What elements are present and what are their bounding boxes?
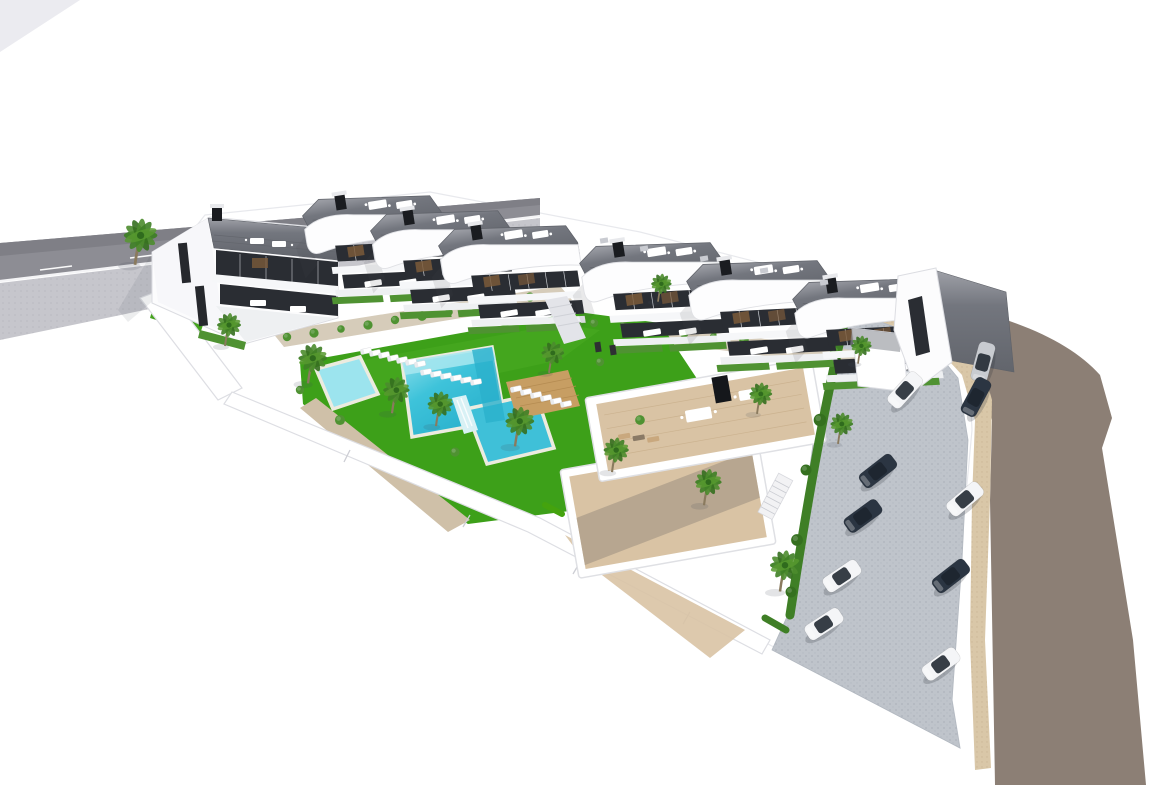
bush [814,414,827,427]
palm-shadow [746,412,761,418]
palm-shadow [691,503,709,510]
palm-shadow [213,344,229,350]
bush [391,316,399,324]
bush [791,534,803,546]
palm-shadow [848,362,862,367]
chimney-cap [210,204,224,208]
bush [363,320,372,329]
architectural-rendering [0,0,1170,785]
bush [450,447,459,456]
bush [590,319,598,327]
terrace-furniture [290,306,306,312]
bush [786,587,797,598]
bush [596,358,604,366]
bush [337,325,345,333]
bush [801,465,812,476]
palm-shadow [827,442,842,448]
chimney-icon [212,206,222,221]
bush [335,415,345,425]
bush [283,333,291,341]
palm-shadow [648,300,662,305]
palm-shadow [501,444,520,451]
pergola [252,258,268,268]
bush [309,328,318,337]
palm-shadow [294,381,313,388]
palm-shadow [379,411,397,418]
palm-shadow [423,424,440,430]
render-canvas [0,0,1170,785]
palm-shadow [538,371,553,377]
bush [635,415,645,425]
palm-shadow [599,470,616,476]
palm-shadow [118,262,140,270]
terrace-furniture [250,300,266,306]
palm-shadow [765,589,785,597]
